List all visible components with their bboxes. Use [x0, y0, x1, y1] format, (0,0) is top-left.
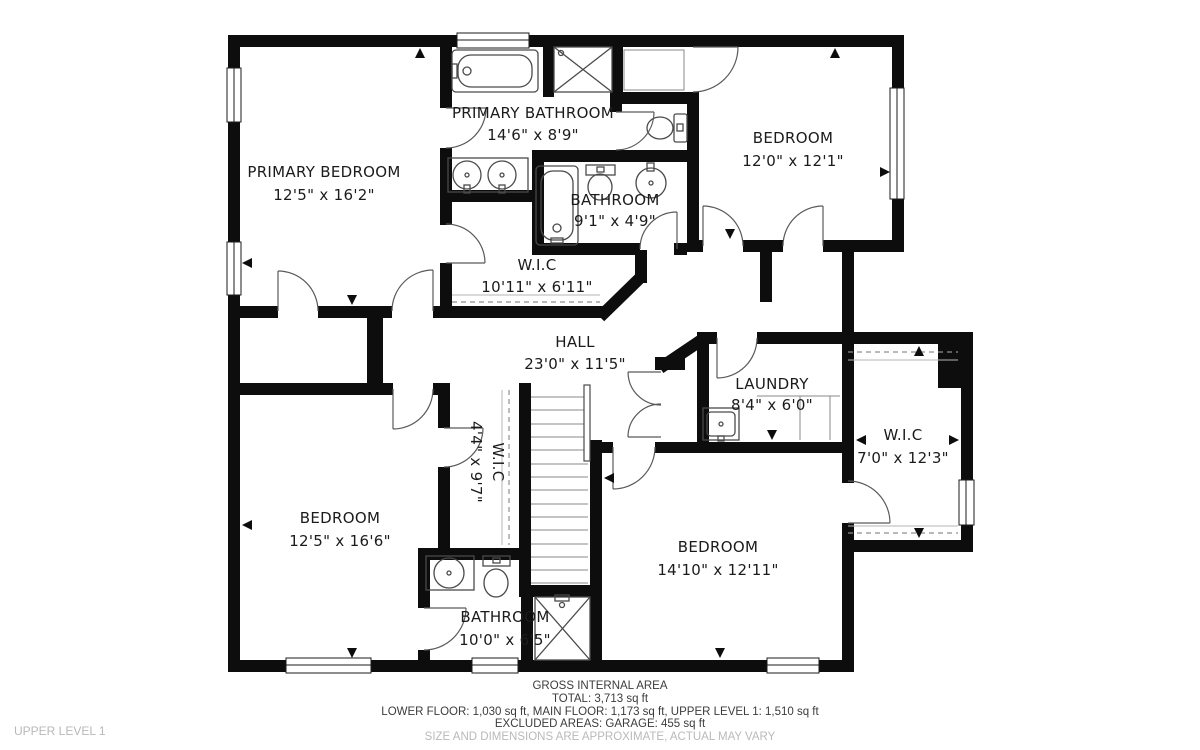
bathtub-icon	[452, 50, 538, 92]
room-label-laundry: LAUNDRY	[735, 375, 809, 393]
room-label-bedroom-top-right: BEDROOM	[753, 129, 833, 147]
area-summary: GROSS INTERNAL AREA TOTAL: 3,713 sq ft L…	[0, 680, 1200, 744]
shower-icon	[554, 47, 612, 92]
window	[767, 658, 819, 673]
room-label-bedroom-bottom-left: BEDROOM	[300, 509, 380, 527]
window	[227, 242, 241, 295]
door	[717, 338, 757, 378]
room-label-wic-primary: W.I.C	[517, 256, 556, 274]
area-summary-excluded: EXCLUDED AREAS: GARAGE: 455 sq ft	[0, 718, 1200, 731]
room-label-hall: HALL	[555, 333, 595, 351]
room-dims-bedroom-bottom-right: 14'10" x 12'11"	[657, 561, 778, 579]
room-dims-primary-bathroom: 14'6" x 8'9"	[487, 126, 579, 144]
door	[392, 270, 433, 311]
room-dims-wic-primary: 10'11" x 6'11"	[481, 278, 592, 296]
sink-icon	[426, 556, 474, 590]
room-dims-laundry: 8'4" x 6'0"	[731, 396, 813, 414]
room-dims-bathroom-bottom: 10'0" x 6'5"	[459, 631, 551, 649]
door	[703, 206, 743, 246]
window	[472, 658, 518, 673]
floorplan-svg: PRIMARY BEDROOM 12'5" x 16'2" PRIMARY BA…	[0, 0, 1200, 750]
room-dims-primary-bedroom: 12'5" x 16'2"	[273, 186, 375, 204]
room-label-wic-small: W.I.C	[489, 442, 507, 481]
door	[446, 224, 485, 263]
shower-icon	[535, 595, 590, 660]
room-label-bathroom-middle: BATHROOM	[570, 191, 659, 209]
closet-box	[624, 50, 684, 90]
room-dims-wic-small: 4'4" x 9'7"	[467, 421, 485, 503]
window	[286, 658, 371, 673]
room-label-primary-bathroom: PRIMARY BATHROOM	[452, 104, 614, 122]
floor-level-tag: UPPER LEVEL 1	[14, 724, 106, 738]
room-label-wic-right: W.I.C	[883, 426, 922, 444]
room-dims-bathroom-middle: 9'1" x 4'9"	[574, 212, 656, 230]
window	[227, 68, 241, 122]
door	[616, 112, 654, 150]
stair-rail	[584, 385, 590, 461]
window	[457, 33, 529, 48]
door	[613, 447, 655, 489]
toilet-icon	[483, 556, 510, 597]
floorplan-page: PRIMARY BEDROOM 12'5" x 16'2" PRIMARY BA…	[0, 0, 1200, 750]
double-sink-icon	[448, 158, 528, 193]
room-label-bathroom-bottom: BATHROOM	[460, 608, 549, 626]
area-summary-total: TOTAL: 3,713 sq ft	[0, 693, 1200, 706]
room-label-primary-bedroom: PRIMARY BEDROOM	[247, 163, 400, 181]
door	[393, 389, 433, 429]
window	[959, 480, 974, 525]
staircase	[531, 385, 590, 583]
double-door	[628, 372, 661, 437]
room-label-bedroom-bottom-right: BEDROOM	[678, 538, 758, 556]
room-dims-wic-right: 7'0" x 12'3"	[857, 449, 949, 467]
room-dims-hall: 23'0" x 11'5"	[524, 355, 626, 373]
window	[890, 88, 904, 199]
room-dims-bedroom-top-right: 12'0" x 12'1"	[742, 152, 844, 170]
area-summary-heading: GROSS INTERNAL AREA	[0, 680, 1200, 693]
door	[848, 481, 890, 523]
door	[278, 271, 318, 311]
area-summary-disclaimer: SIZE AND DIMENSIONS ARE APPROXIMATE, ACT…	[0, 731, 1200, 744]
door	[693, 47, 738, 92]
walls-layer	[228, 35, 973, 672]
door	[783, 206, 823, 246]
room-dims-bedroom-bottom-left: 12'5" x 16'6"	[289, 532, 391, 550]
area-summary-floors: LOWER FLOOR: 1,030 sq ft, MAIN FLOOR: 1,…	[0, 706, 1200, 719]
wic-corner-wall	[600, 277, 641, 317]
